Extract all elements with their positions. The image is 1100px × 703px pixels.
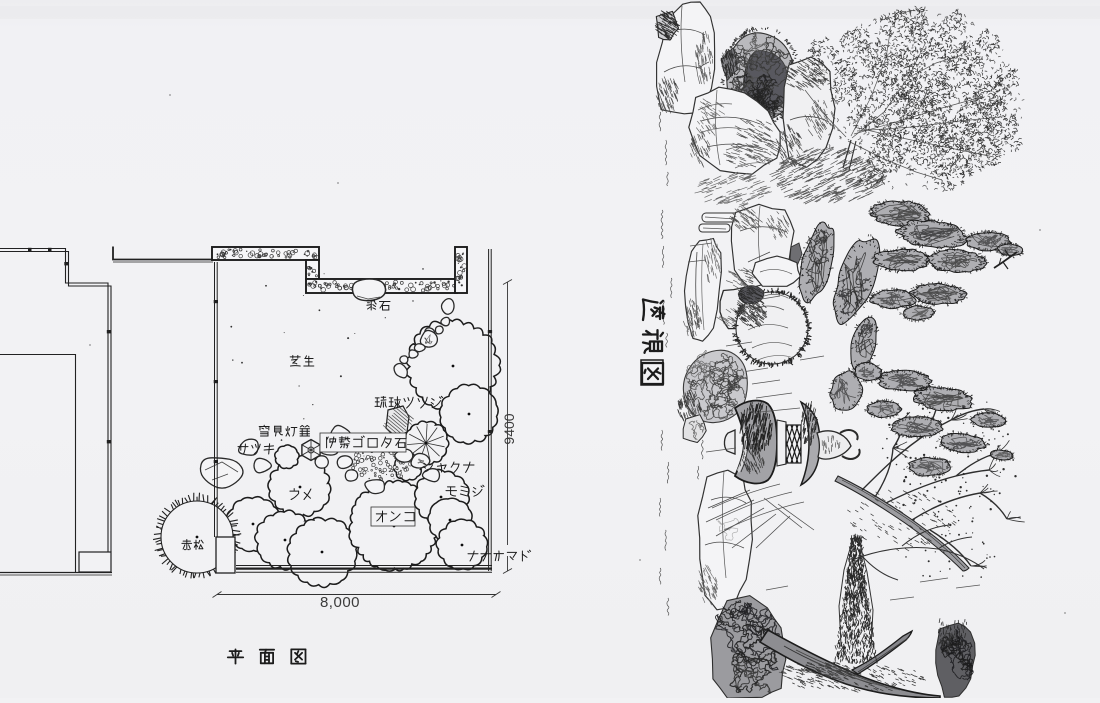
- svg-text:9400: 9400: [501, 413, 517, 444]
- svg-text:8,000: 8,000: [320, 594, 360, 611]
